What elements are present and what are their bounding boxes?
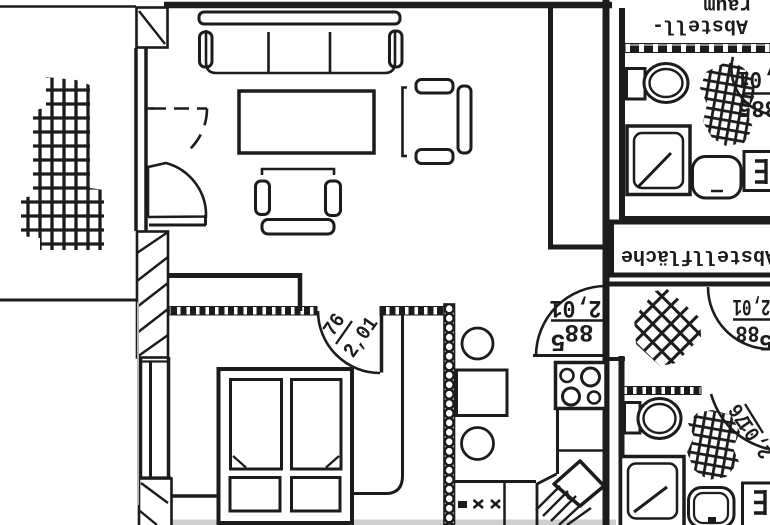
svg-text:88: 88 <box>565 317 594 346</box>
svg-text:5: 5 <box>550 327 565 356</box>
svg-text:Abstellfläche: Abstellfläche <box>621 244 770 267</box>
svg-text:2,01: 2,01 <box>733 293 770 319</box>
svg-text:raum: raum <box>703 0 751 16</box>
svg-text:5: 5 <box>759 328 770 354</box>
svg-text:2,01: 2,01 <box>737 64 770 91</box>
svg-text:885: 885 <box>738 93 770 120</box>
svg-text:Abstell-: Abstell- <box>652 14 748 37</box>
svg-text:88: 88 <box>736 320 760 346</box>
